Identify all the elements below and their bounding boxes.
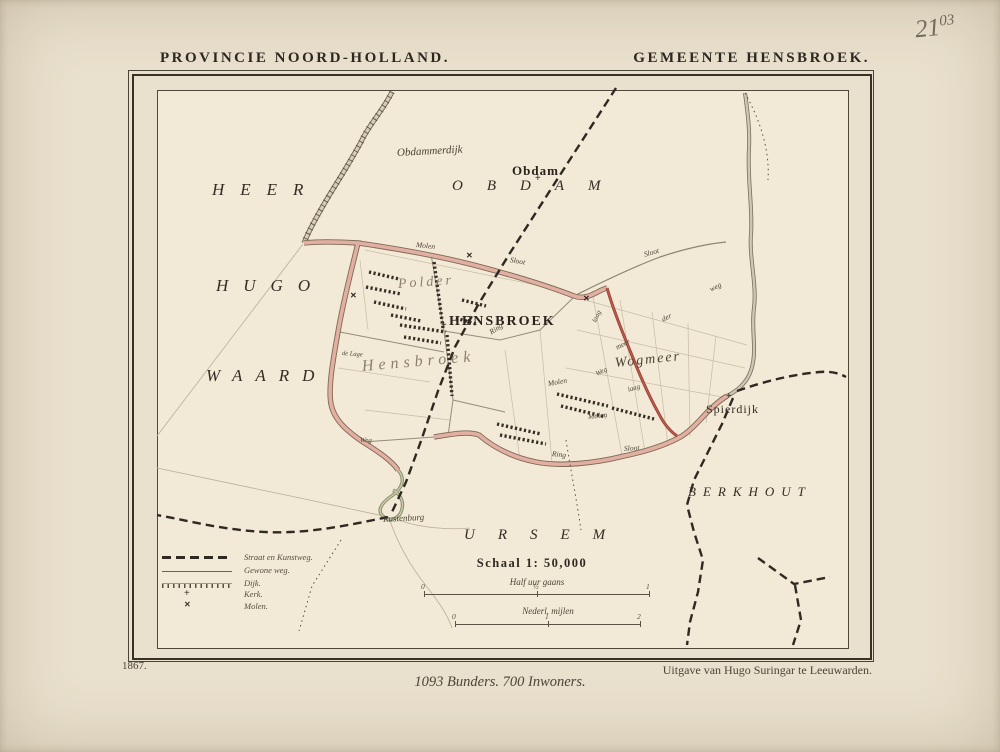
label-wogmeer: Wogmeer <box>614 349 682 372</box>
scalebar1-value-1: 1 <box>646 582 650 591</box>
scale-title: Schaal 1: 50,000 <box>452 556 612 571</box>
scalebar1-value-half: ½ <box>533 582 539 591</box>
road-label-weg-3: Weg <box>594 365 608 377</box>
legend-item-molen: ✕ Molen. <box>162 604 422 616</box>
label-spierdijk: Spierdijk <box>706 402 759 417</box>
scalebar-half-uur: 0 ½ 1 <box>424 594 650 595</box>
road-label-weg-2: Weg <box>360 436 372 444</box>
road-label-sloot-1: Sloot <box>509 255 526 267</box>
legend-item-dijk: Dijk. <box>162 579 422 591</box>
footer-stats: 1093 Bunders. 700 Inwoners. <box>340 674 660 691</box>
legend-item-straat: Straat en Kunstweg. <box>162 552 422 564</box>
legend-label-kerk: Kerk. <box>244 589 263 599</box>
road-label-ring-2: Ring <box>552 449 567 459</box>
kerk-icon: + <box>441 321 447 331</box>
legend-item-gewone-weg: Gewone weg. <box>162 566 422 578</box>
scalebar1-value-0: 0 <box>421 582 425 591</box>
label-hugo: HUGO <box>216 276 325 296</box>
scalebar2-tick-start <box>455 621 456 627</box>
label-hensbroek-polder: Hensbroek <box>361 348 476 376</box>
molen-icon: ✕ <box>466 252 473 260</box>
label-polder: Polder <box>397 273 454 293</box>
legend-item-kerk: + Kerk. <box>162 592 422 604</box>
legend: Straat en Kunstweg. Gewone weg. Dijk. + … <box>162 552 422 622</box>
scalebar1-tick-end <box>649 591 650 597</box>
label-obdammerdijk: Obdammerdijk <box>397 144 463 159</box>
road-dashed-icon <box>162 556 232 559</box>
road-label-sloot-3: Sloot <box>624 443 640 453</box>
kerk-icon: + <box>535 174 541 184</box>
road-label-der: der <box>660 311 673 324</box>
legend-label-straat: Straat en Kunstweg. <box>244 552 313 562</box>
kerk-icon: + <box>726 392 732 402</box>
scalebar1-tick-mid <box>537 591 538 597</box>
label-ursem: URSEM <box>464 527 628 544</box>
scalebar2-value-1: 1 <box>545 612 549 621</box>
road-label-de-lage: de Lage <box>342 350 363 358</box>
footer-year: 1867. <box>122 660 147 672</box>
molen-icon: ✕ <box>583 295 590 303</box>
molen-icon: ✕ <box>184 600 191 609</box>
scalebar2-tick-end <box>640 621 641 627</box>
line-thin-icon <box>162 571 232 572</box>
molen-icon: ✕ <box>350 292 357 300</box>
road-label-molen-2: Molen <box>547 376 567 388</box>
line-hatched-icon <box>162 583 232 588</box>
road-label-molen-1: Molen <box>416 240 436 251</box>
road-label-laag-2: laag <box>627 382 641 393</box>
legend-label-dijk: Dijk. <box>244 578 261 588</box>
label-berkhout: BERKHOUT <box>688 484 812 500</box>
scalebar2-value-2: 2 <box>637 612 641 621</box>
map-sheet: 2103 PROVINCIE NOORD-HOLLAND. GEMEENTE H… <box>0 0 1000 752</box>
footer-publisher: Uitgave van Hugo Suringar te Leeuwarden. <box>663 663 872 678</box>
road-label-sloot-2: Sloot <box>643 246 660 259</box>
scalebar1-tick-start <box>424 591 425 597</box>
map-labels: ObdammerdijkObdamOBDAMHEERHUGOWAARDPolde… <box>0 0 1000 752</box>
label-heer: HEER <box>212 180 319 200</box>
legend-label-gewone-weg: Gewone weg. <box>244 565 290 575</box>
legend-label-molen: Molen. <box>244 601 268 611</box>
scalebar-nederl-mijlen: 0 1 2 <box>455 624 641 625</box>
scalebar2-tick-mid <box>548 621 549 627</box>
label-rustenburg: Rustenburg <box>383 512 425 524</box>
road-label-molen-3: Molen <box>588 410 608 421</box>
road-label-meer: meer <box>614 337 631 352</box>
label-waard: WAARD <box>206 366 327 386</box>
road-label-laag-1: laag <box>590 309 603 324</box>
kerk-icon: + <box>184 588 190 599</box>
scalebar2-value-0: 0 <box>452 612 456 621</box>
road-label-weg-1: weg <box>708 280 723 294</box>
